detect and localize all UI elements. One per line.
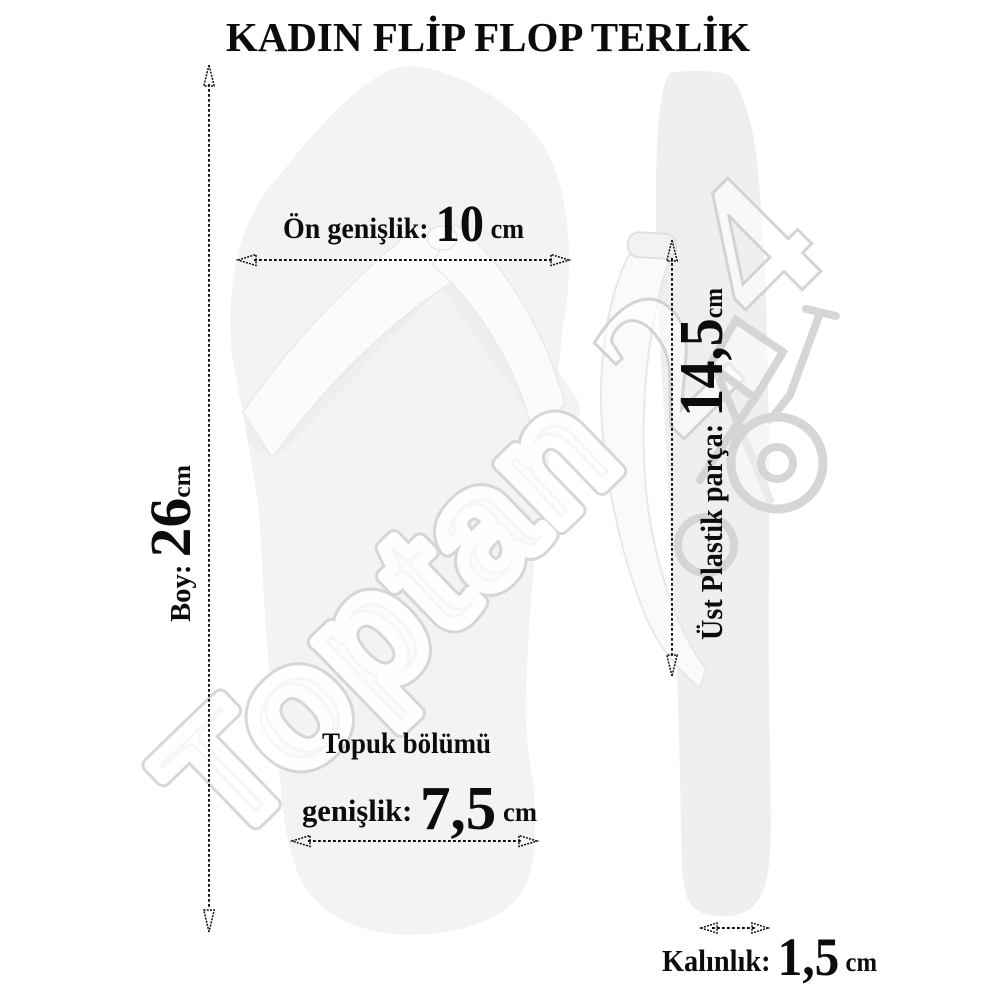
svg-text:Kalınlık: 1,5 cm: Kalınlık: 1,5 cm xyxy=(662,927,877,987)
svg-text:Boy: 26cm: Boy: 26cm xyxy=(138,465,203,622)
svg-text:KADIN FLİP FLOP TERLİK: KADIN FLİP FLOP TERLİK xyxy=(226,14,750,60)
svg-text:Topuk bölümü: Topuk bölümü xyxy=(322,727,491,760)
